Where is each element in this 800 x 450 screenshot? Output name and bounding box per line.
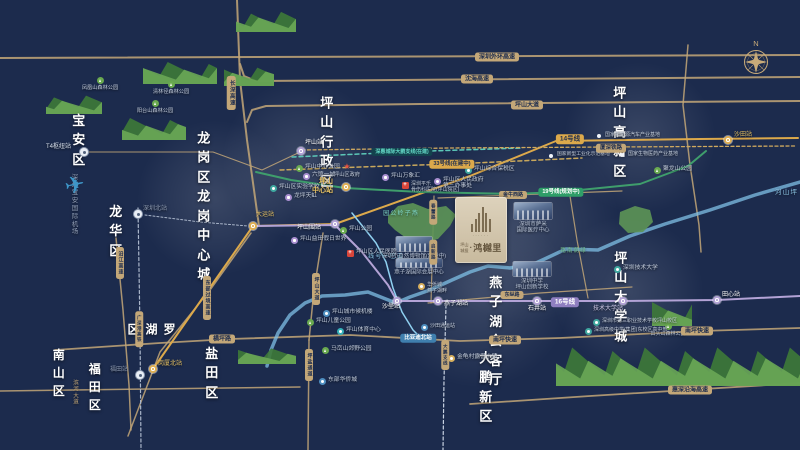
poi-nev-industry-base: 国家新能源汽车产业基地 [596, 133, 603, 140]
poi-pingle-hospital: 深圳平乐 骨伤科医院(坪山院区) [402, 182, 409, 189]
poi-label: 坪山益田假日世界 [300, 236, 346, 243]
poi-label: 坪山中心公园 [305, 164, 340, 171]
poi-icon [597, 134, 602, 139]
station-tech-university: 技术大学站 [619, 297, 627, 305]
map-text-label: 燕子岭公园 [382, 210, 417, 217]
road-shenzhen-outer-ring: 深圳外环高速 [475, 53, 519, 62]
station-label: 技术大学站 [593, 306, 623, 314]
road-label-text: 坪盐通道 [307, 353, 313, 377]
station-label: 岗厦北站 [158, 361, 182, 369]
station-icon [724, 136, 732, 144]
road-changshen-expwy: 长深高速 [227, 76, 236, 110]
poi-icon [585, 328, 592, 335]
road-dongzong: 东纵路 [500, 291, 523, 299]
poi-icon [285, 194, 292, 201]
district-label-text: 宝安区 [72, 113, 88, 167]
text-lvyin-south-road: 绿荫南路 [559, 247, 592, 253]
poi-shenzhen-tech-university: 深圳技术大学 [614, 266, 621, 273]
station-pingshan: 坪山站 [297, 147, 305, 155]
district-label-text: 盐田区 [205, 346, 221, 400]
poi-icon [323, 310, 330, 317]
poi-pingshan-district-gov: 坪山区政府 [344, 164, 351, 171]
poi-label: 聚龙山公园 [663, 166, 692, 173]
road-label-text: 春蕾路 [431, 204, 436, 221]
station-tianxin: 田心站 [713, 296, 721, 304]
district-label-text: 罗湖区 [126, 323, 176, 337]
poi-label: 金龟村露营小镇 [457, 354, 498, 361]
poi-biomed-base: 国家生物医药产业基地 [619, 152, 626, 159]
poi-icon [168, 81, 175, 88]
poi-label: 深圳高级中学(集团)东校区高中部 [594, 327, 667, 333]
road-outer-ring [0, 55, 800, 58]
road-hengping: 横坪路 [209, 335, 235, 344]
road-label-text: 东部过境高速 [205, 280, 211, 316]
poi-julongshan-park: 聚龙山公园 [654, 167, 661, 174]
station-icon [297, 147, 305, 155]
station-icon [713, 296, 721, 304]
poi-yitian-holiday-world: 坪山益田假日世界 [291, 237, 298, 244]
station-label: 石井站 [528, 306, 546, 314]
project-name: 鸿樾里 [473, 241, 502, 254]
road-label-text: 沿江高速 [118, 251, 124, 275]
poi-pingshan-central-park: 坪山中心公园 [296, 165, 303, 172]
road-huishen-coastal-expwy: 惠深沿海高速 [668, 386, 712, 395]
road-label-text: 坪山大道 [314, 277, 320, 301]
station-icon [331, 220, 339, 228]
poi-label: 国家生物医药产业基地 [628, 151, 678, 157]
poi-label: 凤凰山森林公园 [82, 85, 118, 91]
road-qixin: 启新路 [429, 240, 437, 265]
map-text-label: 坪山河 [773, 189, 796, 196]
station-label: 田心站 [722, 292, 740, 300]
road-label-text: 深惠城际大鹏支线(在建) [375, 149, 428, 155]
poi-label: 坪山区人民医院 [356, 249, 397, 256]
poi-icon [614, 266, 621, 273]
station-icon [249, 222, 257, 230]
road-pingshan-avenue: 坪山大道 [511, 101, 543, 110]
photo-natural-history-museum: 深圳市自然博物馆(建设中) [396, 237, 432, 252]
road-label-text: 横坪路 [213, 336, 231, 342]
poi-label: 深圳技术大学 [623, 265, 658, 272]
road-label-text: 坪山大道 [515, 102, 539, 108]
road-label-text: 长深高速 [229, 80, 235, 106]
road-binhe-avenue [0, 387, 300, 391]
compass-icon: N [745, 39, 768, 74]
poi-longping-tianhong: 龙坪天虹 [285, 194, 292, 201]
district-baoan: 宝安区 [72, 91, 88, 169]
road-label-text: 南坪快速 [493, 337, 517, 343]
poi-icon [152, 100, 159, 107]
station-icon [149, 365, 157, 373]
station-label: T4枢纽站 [46, 144, 71, 152]
station-pingshan-center: 坪山 中心站 [342, 183, 350, 191]
station-shabo: 沙壆站 [393, 297, 401, 305]
poi-icon [270, 185, 277, 192]
poi-icon [347, 250, 354, 257]
station-t4-hub: T4枢纽站 [80, 148, 88, 156]
poi-icon [303, 173, 310, 180]
road-huishen-coastal [470, 383, 800, 404]
poi-label: 阳台山森林公园 [137, 108, 173, 114]
poi-photo-image [514, 203, 552, 220]
poi-maluanshan-country-park: 马峦山郊野公园 [322, 347, 329, 354]
poi-label: 坪山城市候机楼 [332, 309, 373, 316]
road-pingshan-avenue-south: 坪山大道 [312, 273, 320, 305]
poi-label: 坪山万象汇 [391, 173, 420, 180]
district-nanshan: 南山区 [53, 328, 68, 400]
intercity-dapeng-branch-pill: 深惠城际大鹏支线(在建) [371, 148, 432, 156]
station-shatian: 沙田站 [724, 136, 732, 144]
road-label-text: 大鹏支线 [443, 344, 448, 366]
map-text-label: 绿荫南路 [559, 247, 585, 253]
road-label-text: 广深港高铁 [137, 315, 142, 343]
road-yanjiang-expwy: 沿江高速 [116, 247, 124, 279]
road-label-text: 深圳外环高速 [479, 54, 515, 60]
road-label-text: 厦深铁路 [600, 144, 622, 150]
poi-senior-high-east-campus: 深圳高级中学(集团)东校区高中部 [585, 328, 592, 335]
road-shenhai-expwy: 沈海高速 [461, 75, 493, 84]
poi-label: 国家新能源汽车产业基地 [605, 132, 660, 138]
road-label-text: 启新路 [431, 244, 436, 261]
rail-xiashen: 厦深铁路 [596, 144, 626, 153]
poi-liuguan-yicheng: 六馆一城 [303, 173, 310, 180]
poi-shatian-depot: 沙田通运站 [421, 324, 428, 331]
road-nanping-expwy-west: 南坪快速 [489, 336, 521, 345]
poi-experimental-school: 坪山区实验学校 [270, 185, 277, 192]
project-company-name: 坪山 城投 [460, 242, 468, 252]
metro-line19-pill: 19号线(规划中) [538, 188, 583, 197]
text-binhe-avenue: 滨河大道 [73, 374, 79, 407]
road-chunlei: 春蕾路 [429, 200, 437, 225]
text-yanziling-park: 燕子岭公园 [380, 210, 423, 217]
logo-dots-divider: ······ [473, 234, 490, 238]
poi-label: 深圳市第三职业技术学校坪山校区 [602, 318, 677, 324]
poi-label: 沙田通运站 [430, 323, 455, 329]
photo-shenzhong-innovation-school: 深圳中学 坪山创新学校 [513, 262, 551, 277]
road-label-text: 沈海高速 [465, 76, 489, 82]
poi-photo-caption: 深圳中学 坪山创新学校 [515, 278, 548, 292]
station-shijing: 石井站 [533, 297, 541, 305]
poi-icon [322, 347, 329, 354]
poi-peoples-hospital: 坪山区人民医院 [347, 250, 354, 257]
area-yanzihu-hall: 燕子湖会客厅 [489, 253, 505, 390]
station-icon [342, 183, 350, 191]
poi-icon [319, 378, 326, 385]
station-label: 深圳北站 [143, 206, 167, 214]
station-dayun: 大运站 [249, 222, 257, 230]
rail-guangshengang-hsr: 广深港高铁 [135, 311, 143, 347]
station-label: 福田站 [110, 367, 128, 375]
road-eastern-transit-expwy: 东部过境高速 [203, 276, 211, 320]
station-label: 坪山围站 [297, 225, 321, 233]
poi-children-park: 坪山儿童公园 [307, 319, 314, 326]
poi-label: 坪山综合保税区 [474, 166, 515, 173]
poi-icon [344, 164, 351, 171]
poi-oct-east: 东部华侨城 [319, 378, 326, 385]
station-yanzihu: 燕子湖站 [434, 297, 442, 305]
road-label-text: 东纵路 [504, 292, 519, 298]
poi-label: 清林径森林公园 [153, 89, 189, 95]
station-label: 沙田站 [734, 132, 752, 140]
metro-line16-pill: 16号线 [551, 297, 579, 307]
district-longgang: 龙岗区 龙岗中心城 [197, 108, 213, 284]
station-gangxia-north: 岗厦北站 [149, 365, 157, 373]
project-logo-card: ······ 坪山 城投 · 鸿樾里 [455, 197, 507, 263]
poi-label: 坪山区政府 [334, 172, 360, 178]
station-icon [533, 297, 541, 305]
road-label-text: 19号线(规划中) [542, 188, 579, 194]
district-label-text: 南山区 [53, 348, 68, 398]
station-icon [80, 148, 88, 156]
road-pingyan-channel: 坪盐通道 [305, 349, 313, 381]
district-label-text: 龙岗区 龙岗中心城 [197, 130, 213, 282]
poi-icon [593, 319, 600, 326]
poi-photo-caption: 深圳市萨米 国际医疗中心 [516, 221, 549, 235]
poi-icon [382, 174, 389, 181]
project-brand: 坪山 城投 · 鸿樾里 [460, 241, 502, 254]
pingshan-location-map: N 宝安区 龙岗区 龙岗中心城 龙华区 罗湖区 南山区 福田区 盐田区 大鹏新区… [0, 0, 800, 450]
poi-photo-image [513, 262, 551, 277]
station-label: 坪山 中心站 [312, 178, 333, 196]
poi-icon [291, 237, 298, 244]
station-icon [134, 210, 142, 218]
poi-qinglinjing-forest-park: 清林径森林公园 [168, 81, 175, 88]
poi-label: 深圳平乐 骨伤科医院(坪山院区) [411, 181, 459, 193]
poi-icon [97, 77, 104, 84]
poi-photo-image [396, 237, 432, 252]
poi-label: 马峦山郊野公园 [331, 346, 372, 353]
poi-label: 坪山公园 [349, 226, 372, 233]
poi-label: 坪山体育中心 [346, 327, 381, 334]
road-label-text: 金牛西路 [503, 192, 523, 198]
poi-icon [402, 182, 409, 189]
district-label-text: 福田区 [89, 362, 104, 412]
poi-photo-caption: 燕子湖国际会展中心 [394, 269, 444, 276]
map-text-label: 滨河大道 [73, 380, 79, 406]
poi-label: 坪山儿童公园 [316, 318, 351, 325]
poi-icon [421, 324, 428, 331]
poi-third-vocational-school: 深圳市第三职业技术学校坪山校区 [593, 319, 600, 326]
station-label: 沙壆站 [382, 304, 400, 312]
photo-sami-medical-center: 深圳市萨米 国际医疗中心 [514, 203, 552, 220]
poi-fenghuangshan-forest-park: 凤凰山森林公园 [97, 77, 104, 84]
poi-yangtaishan-forest-park: 阳台山森林公园 [152, 100, 159, 107]
station-label: 大运站 [256, 212, 274, 220]
station-pingshanwei: 坪山围站 [331, 220, 339, 228]
station-icon [619, 297, 627, 305]
road-label-text: 14号线 [560, 135, 580, 142]
station-shenzhen-north: 深圳北站 [134, 210, 142, 218]
poi-icon [337, 328, 344, 335]
station-label: 坪山站 [305, 140, 323, 148]
metro-line33-pill: 33号线(在建中) [429, 160, 474, 169]
poi-label: 国家新型工业化示范基地 [557, 152, 610, 158]
poi-icon [654, 167, 661, 174]
station-label: 燕子湖站 [444, 301, 468, 309]
poi-new-industrial-base: 国家新型工业化示范基地 [548, 153, 555, 160]
poi-icon [296, 165, 303, 172]
poi-oct-yanzihu: 华侨城· 燕子湖畔 [418, 283, 425, 290]
station-futian: 福田站 [136, 371, 144, 379]
road-label-text: 33号线(在建中) [433, 160, 470, 166]
yunba-byd-north-station: 比亚迪北站 [400, 334, 436, 343]
road-label-text: 比亚迪北站 [404, 334, 432, 340]
poi-sports-center: 坪山体育中心 [337, 328, 344, 335]
rail-dapeng-branch: 大鹏支线 [441, 340, 449, 370]
project-brand-separator: · [470, 243, 473, 252]
road-label-text: 南坪快速 [685, 328, 709, 334]
poi-label: 华侨城· 燕子湖畔 [427, 282, 447, 294]
poi-icon [549, 154, 554, 159]
poi-icon [340, 227, 347, 234]
compass-north-label: N [753, 39, 758, 48]
poi-pingshan-park: 坪山公园 [340, 227, 347, 234]
road-nanping-expwy-east: 南坪快速 [681, 327, 713, 336]
station-icon [434, 297, 442, 305]
text-pingshan-river: 坪山河 [772, 189, 800, 196]
poi-pingshan-mixc: 坪山万象汇 [382, 174, 389, 181]
district-futian: 福田区 [89, 342, 104, 414]
poi-icon [620, 153, 625, 158]
project-tower-icon [471, 206, 491, 232]
road-label-text: 惠深沿海高速 [672, 387, 708, 393]
metro-line14-pill: 14号线 [556, 134, 584, 144]
station-icon [136, 371, 144, 379]
poi-icon [418, 283, 425, 290]
area-pingshan-hightech: 坪山高新区 [613, 64, 629, 181]
poi-city-air-terminal: 坪山城市候机楼 [323, 310, 330, 317]
poi-label: 东部华侨城 [328, 377, 357, 384]
poi-icon [307, 319, 314, 326]
road-label-text: 16号线 [555, 298, 575, 305]
